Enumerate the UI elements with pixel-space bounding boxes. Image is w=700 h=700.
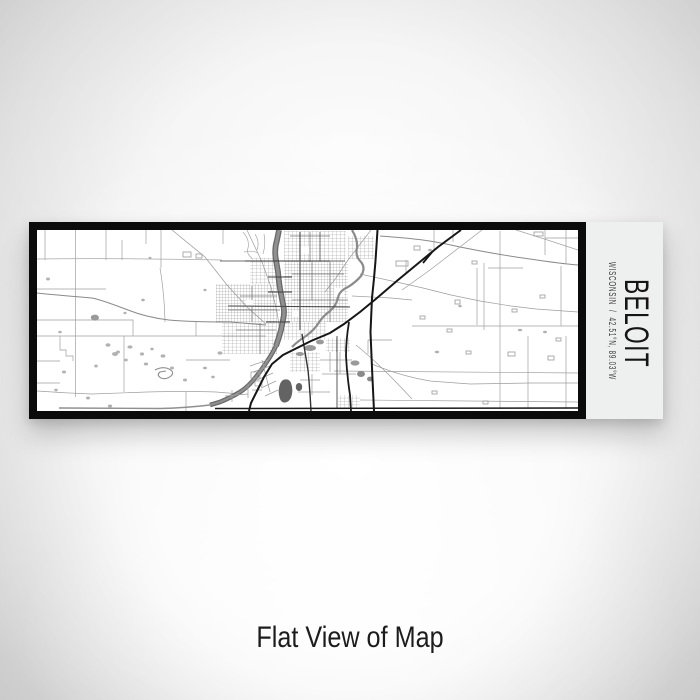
svg-text:BELOIT: BELOIT	[617, 279, 655, 368]
